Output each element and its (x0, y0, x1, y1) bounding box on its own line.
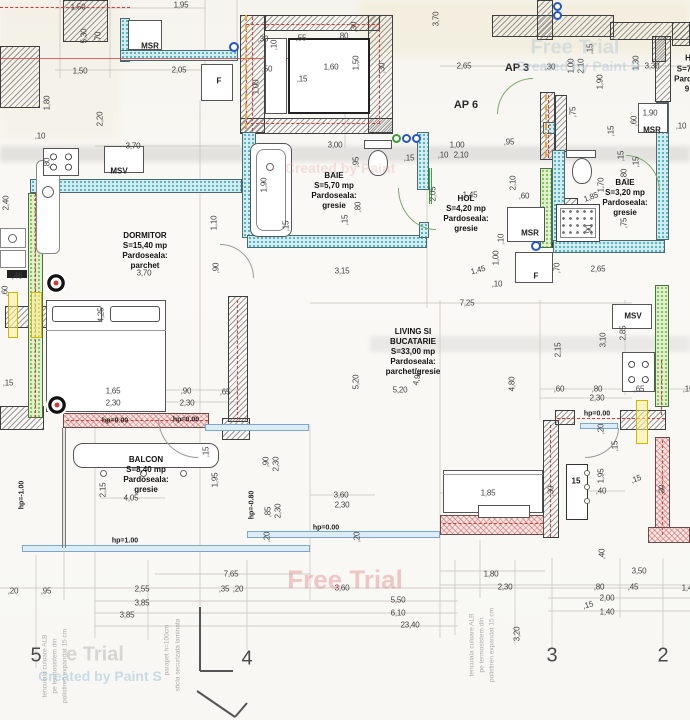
column-symbol (46, 394, 68, 416)
heating-line (0, 7, 130, 8)
fixture-label: F (534, 272, 539, 281)
dimension-label: ,60 (1, 286, 10, 297)
dimension-label: 6,10 (391, 609, 406, 618)
heating-line (443, 523, 543, 524)
dimension-label: ,70 (94, 32, 103, 43)
dimension-label: 5,20 (393, 386, 408, 395)
dimension-label: ,40 (596, 487, 607, 496)
bed-line (46, 330, 166, 331)
dimension-label: ,80 (620, 169, 629, 180)
gas-riser (636, 400, 648, 444)
fixture-label: S=7 (677, 65, 690, 74)
room-name: BALCON (129, 455, 163, 465)
dimension-label: 2,30 (498, 583, 513, 592)
vent-circle (412, 134, 421, 143)
dimension-label: 4,80 (508, 377, 517, 392)
heating-line (557, 418, 665, 419)
dimension-label: 2,05 (172, 66, 187, 75)
dimension-label: 1,95 (211, 473, 220, 488)
room-area: S=8,40 mp (126, 465, 166, 475)
dimension-label: 1,95 (597, 469, 606, 484)
dimension-label: ,10 (492, 280, 503, 289)
heating-line (661, 360, 662, 415)
room-floor: Pardoseala: gresie (123, 475, 168, 495)
dimension-label: 3,50 (632, 567, 647, 576)
bench-leg (180, 470, 187, 477)
dimension-label: 5,50 (391, 596, 406, 605)
floor-plan: DORMITORS=15,40 mpPardoseala: parchetBAI… (0, 0, 690, 720)
pillow (52, 306, 102, 322)
dimension-label: ,10 (438, 151, 449, 160)
dimension-label: ,30 (378, 63, 387, 74)
dimension-label: 1,40 (682, 584, 690, 593)
dimension-label: ,20 (233, 585, 244, 594)
dimension-label: 1,10 (210, 216, 219, 231)
dimension-label: 3,70 (126, 142, 141, 151)
dimension-label: 1,60 (324, 63, 339, 72)
dimension-label: 3,30 (645, 62, 660, 71)
construction-note: parapet h=100cm (164, 625, 171, 676)
dimension-label: 2,15 (554, 343, 563, 358)
room-label: BAIES=5,70 mpPardoseala: gresie (311, 171, 356, 211)
dimension-label: ,30 (547, 486, 556, 497)
room-area: S=33,00 mp (391, 347, 435, 357)
dimension-label: 7,65 (224, 570, 239, 579)
dimension-label: 1,90 (596, 75, 605, 90)
radiator-valve (584, 498, 590, 504)
dimension-label: ,90 (262, 457, 271, 468)
dimension-label: 3,85 (135, 599, 150, 608)
dimension-label: 3,60 (334, 491, 349, 500)
dimension-label: 2,65 (591, 265, 606, 274)
gas-line (245, 15, 247, 129)
dimension-label: ,95 (41, 587, 52, 596)
room-area: S=3,20 mp (605, 188, 645, 198)
room-area: S=5,70 mp (314, 181, 354, 191)
vent-circle (229, 42, 239, 52)
toilet-tank (364, 140, 392, 149)
fixture-label: Pard (674, 75, 690, 84)
dimension-label: ,55 (296, 34, 307, 43)
dimension-label: ,80 (354, 202, 363, 213)
dimension-label: 1,50 (71, 3, 86, 12)
vent-circle (392, 134, 401, 143)
axis-number: 4 (241, 648, 252, 671)
dimension-label: ,10 (35, 132, 46, 141)
dimension-label: ,20 (263, 532, 272, 543)
dimension-label: ,80 (594, 583, 605, 592)
dimension-label: 1,90 (643, 109, 658, 118)
fixture-label: AP 6 (454, 99, 478, 111)
drain-icon (266, 163, 274, 171)
dimension-label: 1,80 (484, 570, 499, 579)
dimension-label: ,65 (220, 388, 231, 397)
dimension-label: ,30 (350, 22, 359, 33)
shower-tray (556, 204, 600, 242)
dimension-label: 1,90 (260, 178, 269, 193)
dimension-label: 4,25 (97, 308, 106, 323)
room-label: DORMITORS=15,40 mpPardoseala: parchet (122, 231, 167, 271)
room-floor: Pardoseala: gresie (311, 191, 356, 211)
fixture-label: 9 (685, 85, 689, 94)
dimension-label: ,60 (519, 192, 530, 201)
fixture-label: H (685, 54, 690, 63)
dimension-label: 2,40 (2, 196, 11, 211)
fixture-label: MSR (521, 229, 539, 238)
dimension-label: ,60 (554, 385, 565, 394)
wall-segment (0, 46, 40, 108)
dimension-label: ,60 (630, 116, 639, 127)
dimension-label: ,40 (598, 549, 607, 560)
radiator-valve (584, 484, 590, 490)
fixture-label: hp=0.00 (102, 418, 128, 425)
watermark-text: Free Trial (531, 37, 620, 60)
axis-number: 2 (657, 645, 668, 668)
room-name: DORMITOR (123, 231, 166, 241)
dimension-label: 1,50 (73, 67, 88, 76)
dimension-label: 1,80 (43, 96, 52, 111)
fixture-label: hp=-1.00 (19, 481, 26, 510)
dimension-label: 5,20 (352, 375, 361, 390)
fixture-label: hp=0.00 (584, 411, 610, 418)
dimension-label: 2,10 (454, 151, 469, 160)
dimension-label: ,15 (611, 441, 620, 452)
construction-note: tencuiala culoare ALB (42, 635, 49, 698)
dimension-label: ,80 (43, 158, 52, 169)
counter (0, 250, 26, 268)
gas-riser (31, 292, 42, 338)
dimension-label: 3,15 (335, 267, 350, 276)
dimension-label: ,10 (497, 234, 506, 245)
fixture-label: hp=-0.80 (249, 491, 256, 520)
dimension-label: 3,70 (432, 12, 441, 27)
dimension-label: ,80 (592, 385, 603, 394)
dimension-label: ,15 (632, 157, 641, 168)
dimension-label: 2,65 (457, 62, 472, 71)
room-label: BAIES=3,20 mpPardoseala: gresie (602, 178, 647, 218)
window-band (247, 531, 440, 538)
wall-segment (648, 527, 690, 543)
column-symbol (45, 272, 67, 294)
wall-segment (228, 296, 248, 422)
fixture-label: F (217, 77, 222, 86)
fixture-label: hp=0.00 (173, 417, 199, 424)
wall-segment (543, 420, 559, 538)
dimension-label: ,15 (282, 221, 291, 232)
axis-number: 5 (30, 645, 41, 668)
gas-line (545, 95, 547, 157)
sink-icon (42, 186, 54, 198)
dimension-label: 1,00 (252, 80, 261, 95)
dimension-label: 2,30 (590, 394, 605, 403)
dimension-label: ,30 (258, 35, 269, 44)
dimension-label: ,20 (597, 424, 606, 435)
dimension-label: ,70 (553, 263, 562, 274)
dimension-label: 1,70 (597, 178, 606, 193)
dimension-label: 2,30 (335, 501, 350, 510)
pillow (110, 306, 160, 322)
room-name: BAIE (615, 178, 634, 188)
dimension-label: 2,30 (180, 399, 195, 408)
heating-line (237, 300, 238, 420)
fixture-label: MSR (141, 42, 159, 51)
wall-segment (555, 95, 567, 152)
watermark-text: Created by Paint (285, 160, 395, 176)
wall-segment (537, 0, 553, 40)
heating-line (252, 17, 253, 131)
fixture-label: 15 (572, 477, 581, 486)
dimension-label: 2,20 (96, 112, 105, 127)
dimension-label: 4,05 (124, 494, 139, 503)
fixture-label: MSR (643, 126, 661, 135)
wall-segment (655, 285, 669, 407)
dimension-label: ,65 (634, 385, 645, 394)
wall-segment (30, 179, 242, 193)
dimension-label: ,15 (341, 215, 350, 226)
sink-icon (8, 234, 17, 243)
construction-note: tencuiala culoare ALB (469, 614, 476, 677)
dimension-label: ,15 (683, 385, 690, 394)
radiator-valve (584, 470, 590, 476)
dimension-label: 3,70 (137, 269, 152, 278)
balcony-edge (62, 428, 66, 548)
dimension-label: ,50 (262, 65, 273, 74)
dimension-label: 1,65 (106, 387, 121, 396)
dimension-label: ,15 (297, 75, 308, 84)
dimension-label: ,75 (620, 218, 629, 229)
dimension-label: 1,00 (450, 141, 465, 150)
dimension-label: ,15 (202, 447, 211, 458)
dimension-label: ,15 (617, 151, 626, 162)
wall-segment (440, 515, 544, 535)
fixture-label: hp=1.00 (112, 538, 138, 545)
watermark-text: Created by Paint S (38, 668, 162, 684)
dimension-label: ,90 (212, 263, 221, 274)
dimension-label: 1,00 (492, 251, 501, 266)
dimension-label: ,85 (264, 507, 273, 518)
dimension-label: ,95 (504, 138, 515, 147)
room-floor: Pardoseala: gresie (602, 198, 647, 218)
dimension-label: 2,00 (600, 594, 615, 603)
dimension-label: 7,25 (460, 299, 475, 308)
fixture-label: hp=0.00 (313, 525, 339, 532)
toilet-bowl (572, 158, 592, 184)
heating-line (550, 425, 551, 537)
dimension-label: ,80 (338, 32, 349, 41)
dimension-label: 3,20 (513, 627, 522, 642)
dimension-label: ,10 (676, 122, 687, 131)
fixture-label: MSV (110, 167, 127, 176)
dimension-label: ,20 (353, 532, 362, 543)
construction-note: pe termosistem din (52, 639, 59, 694)
room-area: S=15,40 mp (123, 241, 167, 251)
vent-circle (553, 2, 562, 11)
dimension-label: ,75 (569, 107, 578, 118)
table (478, 505, 530, 518)
dimension-label: 2,30 (106, 399, 121, 408)
dimension-label: ,35 (219, 585, 230, 594)
toilet-tank (566, 150, 596, 158)
dimension-label: 5,30 (80, 29, 89, 44)
room-area: S=4,20 mp (446, 204, 486, 214)
room-label: BALCONS=8,40 mpPardoseala: gresie (123, 455, 168, 495)
dimension-label: 2,15 (99, 483, 108, 498)
dimension-label: ,90 (585, 225, 594, 236)
dimension-label: ,45 (628, 583, 639, 592)
dimension-label: ,90 (181, 387, 192, 396)
construction-note: sticla securizata laminata (175, 619, 182, 692)
dimension-label: 23,40 (400, 621, 419, 630)
fixture-label: MSV (624, 312, 641, 321)
dimension-label: ,30 (658, 485, 667, 496)
dimension-label: ,15 (607, 126, 616, 137)
room-label: HOLS=4,20 mpPardoseala: gresie (443, 194, 488, 234)
dimension-label: ,46 (12, 272, 23, 281)
dimension-label: 2,55 (135, 585, 150, 594)
dimension-label: 3,10 (599, 333, 608, 348)
vent-circle (531, 241, 541, 251)
sofa-back-line (443, 474, 543, 475)
dimension-label: 3,85 (120, 611, 135, 620)
room-name: LIVING SI BUCATARIE (386, 327, 441, 347)
watermark-text: Free Trial (287, 565, 403, 596)
dimension-label: 1,40 (600, 608, 615, 617)
dimension-label: 2,05 (429, 187, 438, 202)
dimension-label: 3,00 (328, 141, 343, 150)
heating-line (548, 95, 549, 158)
dimension-label: 1,95 (174, 1, 189, 10)
dimension-label: 2,10 (509, 176, 518, 191)
vent-circle (402, 134, 411, 143)
dimension-label: 1,45 (463, 191, 478, 200)
wall-segment (120, 50, 238, 61)
dimension-label: ,10 (270, 40, 279, 51)
dimension-label: 2,30 (274, 504, 283, 519)
bench-leg (100, 470, 107, 477)
construction-note: pe termosistem din (479, 618, 486, 673)
dimension-label: ,15 (404, 154, 415, 163)
dimension-label: 2,85 (619, 326, 628, 341)
wall-segment (672, 22, 690, 46)
room-floor: Pardoseala: gresie (443, 214, 488, 234)
vent-circle (553, 11, 562, 20)
watermark-text: e Trial (66, 644, 124, 667)
axis-number: 3 (546, 645, 557, 668)
dimension-label: ,15 (3, 379, 14, 388)
dimension-label: 2,30 (272, 457, 281, 472)
window-band (205, 424, 309, 431)
dimension-label: 1,85 (481, 489, 496, 498)
watermark-text: Created by Paint S (516, 58, 640, 74)
gas-riser (8, 292, 18, 338)
dimension-label: ,20 (8, 587, 19, 596)
dimension-label: 1,50 (352, 56, 361, 71)
construction-note: polistiren expandat 15 cm (489, 608, 496, 682)
